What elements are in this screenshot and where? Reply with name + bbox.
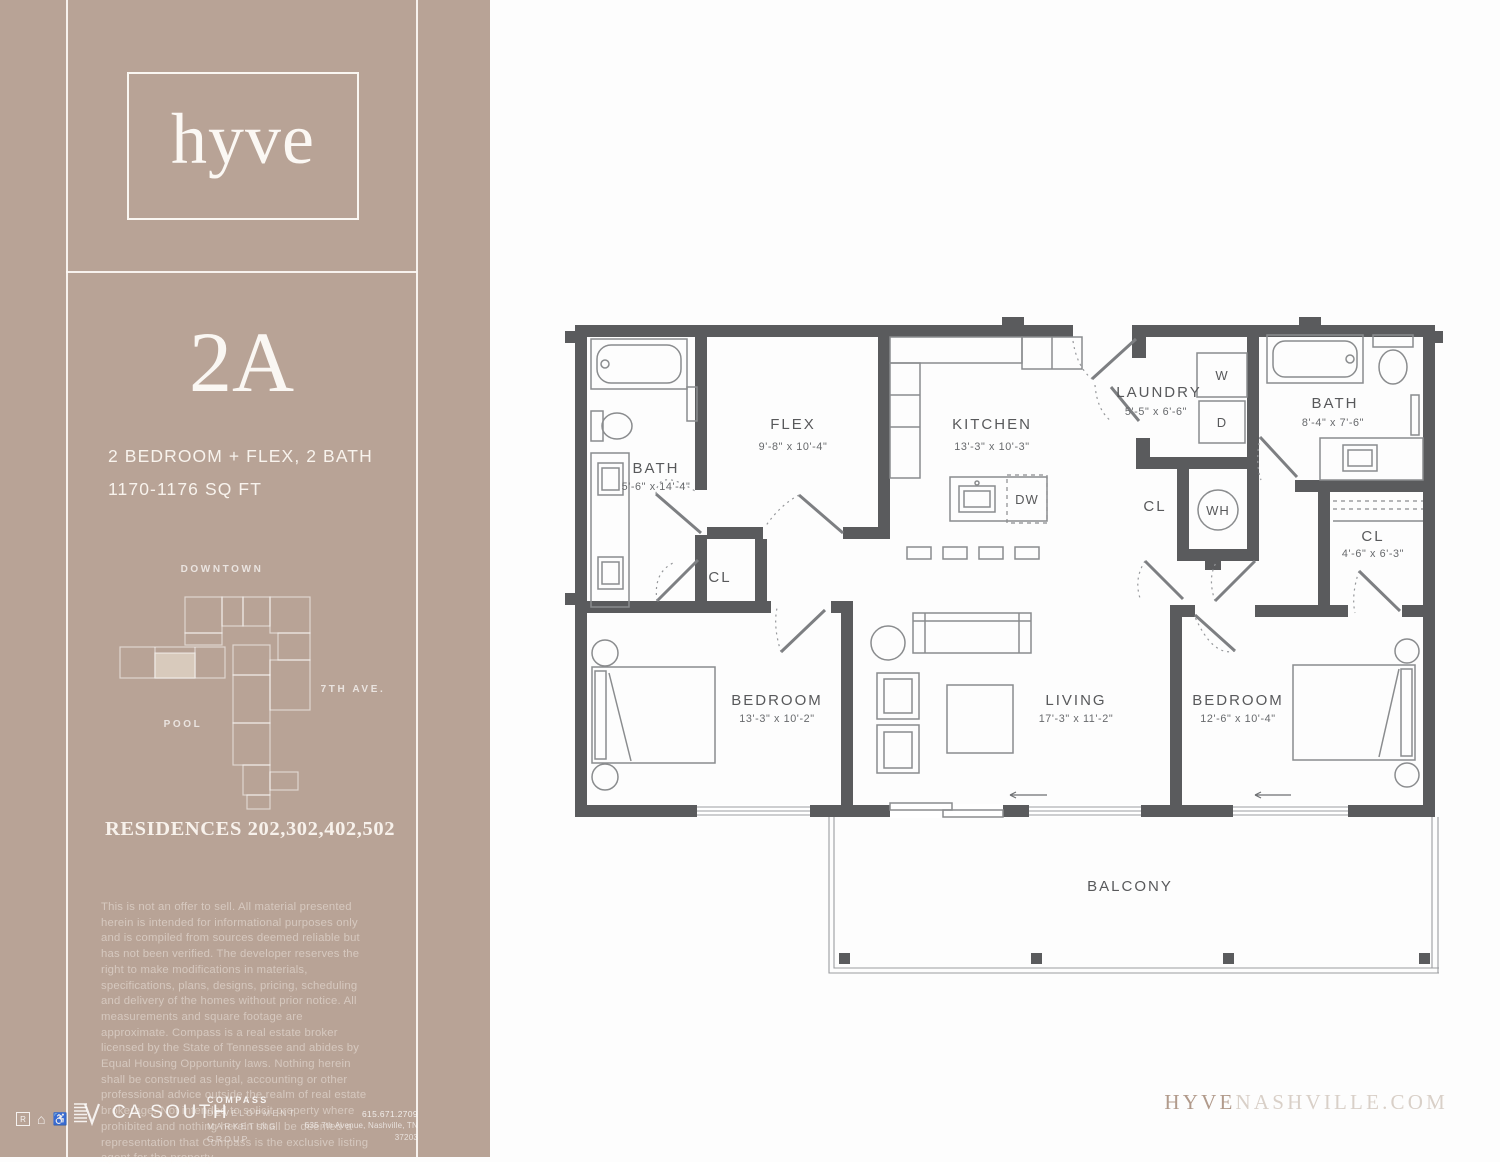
sink-faucet-icon — [975, 481, 979, 485]
tub-faucet-icon — [1346, 355, 1354, 363]
compass-line: MARKETING — [207, 1120, 296, 1133]
ca-south-icon — [74, 1100, 104, 1126]
website-suffix: NASHVILLE.COM — [1235, 1090, 1448, 1114]
bath1-label: BATH — [633, 460, 680, 477]
closet2-rod — [1333, 501, 1423, 521]
site-map-avenue-label: 7TH AVE. — [321, 684, 386, 695]
headboard — [1401, 669, 1412, 756]
unit-specs: 2 BEDROOM + FLEX, 2 BATH 1170-1176 SQ FT — [108, 440, 373, 506]
coffee-table — [947, 685, 1013, 753]
nightstand — [592, 764, 618, 790]
website-url: HYVENASHVILLE.COM — [1164, 1090, 1448, 1115]
sliding-door — [890, 803, 1003, 818]
bath2-label: BATH — [1312, 395, 1359, 412]
bath1-dims: 5'-6" x 14'-4" — [622, 481, 691, 493]
dryer-label: D — [1217, 415, 1227, 430]
toilet-icon — [591, 411, 603, 441]
nightstand — [1395, 639, 1419, 663]
sidebar-divider-left — [66, 0, 68, 1157]
stool — [1015, 547, 1039, 559]
accessibility-icon: ♿ — [52, 1113, 67, 1125]
balcony-rail — [829, 817, 1439, 973]
water-heater-label: WH — [1206, 503, 1230, 518]
closet-bedroom2-label: CL — [1361, 528, 1384, 545]
floor-plan: BATH 5'-6" x 14'-4" FLEX 9'-8" x 10'-4" … — [555, 305, 1455, 1005]
phone-number: 615.671.2709 — [286, 1108, 418, 1120]
interior-walls — [575, 325, 1423, 805]
kitchen-label: KITCHEN — [952, 416, 1032, 433]
site-map-downtown-label: DOWNTOWN — [181, 564, 264, 575]
pantry-cabinets — [890, 363, 920, 478]
compass-line: GROUP — [207, 1133, 296, 1146]
bedroom1-label: BEDROOM — [731, 692, 823, 709]
unit-spec-line2: 1170-1176 SQ FT — [108, 473, 373, 506]
dishwasher-label: DW — [1015, 492, 1039, 507]
hyve-logo: hyve — [127, 72, 359, 220]
bath2-dims: 8'-4" x 7'-6" — [1302, 417, 1364, 429]
realtor-icon: R — [16, 1112, 30, 1126]
balcony-post — [1031, 953, 1042, 964]
compass-dmg-block: COMPASS DEVELOPMENT MARKETING GROUP — [207, 1094, 296, 1146]
hyve-logo-text: hyve — [171, 103, 315, 189]
ca-south-logo-block: CA SOUTH — [74, 1100, 229, 1126]
footer-icons: R ⌂ ♿ — [16, 1112, 67, 1126]
compass-line: DEVELOPMENT — [207, 1107, 296, 1120]
bedroom1-dims: 13'-3" x 10'-2" — [739, 713, 814, 725]
balcony-post — [1223, 953, 1234, 964]
stool — [979, 547, 1003, 559]
site-map-pool-label: POOL — [164, 719, 203, 730]
balcony-post — [839, 953, 850, 964]
stool — [943, 547, 967, 559]
laundry-dims: 5'-5" x 6'-6" — [1125, 406, 1187, 418]
round-table — [871, 626, 905, 660]
residences-list: RESIDENCES 202,302,402,502 — [80, 818, 420, 841]
equal-housing-icon: ⌂ — [37, 1112, 45, 1126]
site-map-building-outline — [120, 597, 310, 809]
sidebar: hyve 2A 2 BEDROOM + FLEX, 2 BATH 1170-11… — [0, 0, 490, 1157]
compass-line: COMPASS — [207, 1094, 296, 1107]
closet-utility-label: CL — [1143, 498, 1166, 515]
site-map-highlighted-unit — [155, 653, 195, 678]
site-plan-map: DOWNTOWN 7TH AVE. POOL — [95, 550, 425, 840]
flex-dims: 9'-8" x 10'-4" — [759, 441, 828, 453]
living-furniture — [871, 613, 1031, 773]
stool — [907, 547, 931, 559]
nightstand — [592, 640, 618, 666]
living-label: LIVING — [1045, 692, 1106, 709]
balcony-label: BALCONY — [1087, 878, 1173, 895]
kitchen-dims: 13'-3" x 10'-3" — [954, 441, 1029, 453]
address: 635 7th Avenue, Nashville, TN 37203 — [286, 1120, 418, 1144]
bedroom2-label: BEDROOM — [1192, 692, 1284, 709]
bedroom2-dims: 12'-6" x 10'-4" — [1200, 713, 1275, 725]
slide-arrow-icon — [1010, 792, 1291, 798]
closet-hall-label: CL — [708, 569, 731, 586]
laundry-label: LAUNDRY — [1116, 384, 1201, 401]
flex-label: FLEX — [770, 416, 816, 433]
sidebar-divider-horizontal — [66, 271, 417, 273]
contact-block: 615.671.2709 635 7th Avenue, Nashville, … — [286, 1108, 418, 1144]
living-dims: 17'-3" x 11'-2" — [1039, 713, 1114, 725]
tub-faucet-icon — [601, 360, 609, 368]
balcony-post — [1419, 953, 1430, 964]
closet-bedroom2-dims: 4'-6" x 6'-3" — [1342, 548, 1404, 560]
sofa — [913, 613, 1031, 653]
unit-spec-line1: 2 BEDROOM + FLEX, 2 BATH — [108, 440, 373, 473]
website-brand: HYVE — [1164, 1090, 1235, 1114]
bedroom2-furniture — [1293, 639, 1419, 787]
bedroom1-furniture — [592, 640, 715, 790]
headboard — [595, 671, 606, 759]
washer-label: W — [1215, 368, 1228, 383]
nightstand — [1395, 763, 1419, 787]
flyer-page: hyve 2A 2 BEDROOM + FLEX, 2 BATH 1170-11… — [0, 0, 1500, 1162]
unit-name: 2A — [66, 312, 417, 412]
